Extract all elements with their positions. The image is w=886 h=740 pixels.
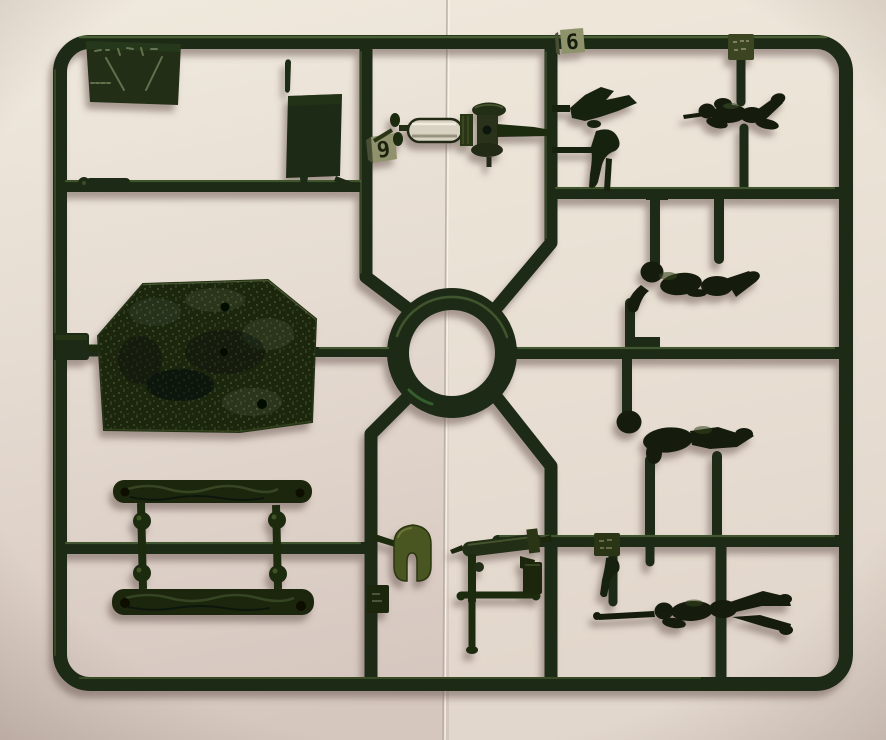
ammo-box <box>523 562 542 594</box>
log-beam-lower <box>112 589 314 615</box>
part-tag-below-shield <box>367 585 389 613</box>
junction-block-h2 <box>646 188 668 200</box>
sprue-photo: 9 <box>0 0 886 740</box>
manufacturer-logo-plate <box>86 40 181 105</box>
tag-6-label: 6 <box>565 29 579 54</box>
junction-block-mid <box>632 337 660 356</box>
part-tag-top-right <box>728 34 754 60</box>
small-side-block <box>53 333 89 360</box>
